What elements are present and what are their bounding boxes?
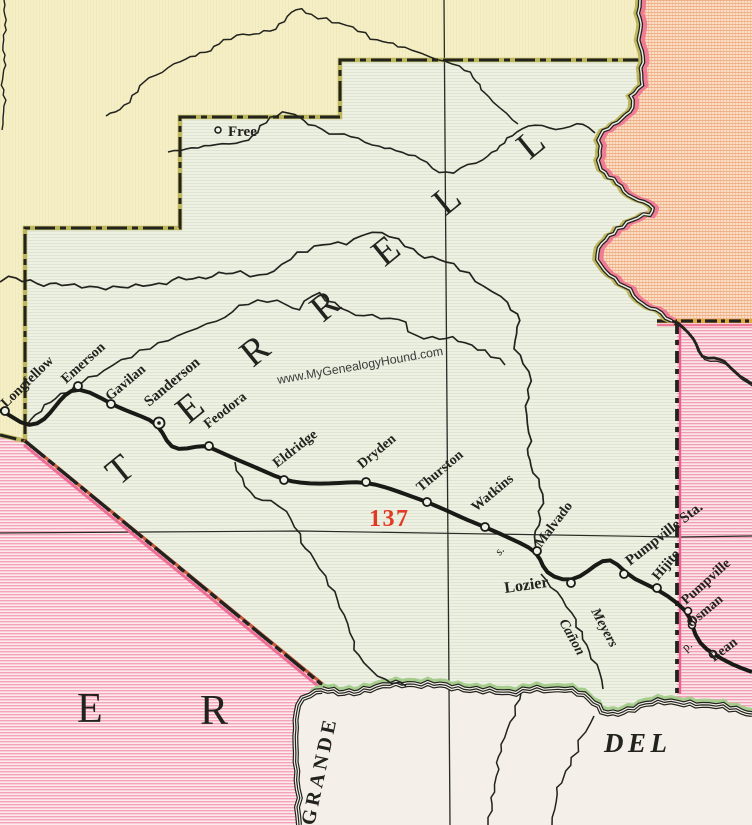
svg-text:Free: Free [228, 124, 257, 140]
svg-text:137: 137 [369, 506, 410, 532]
svg-text:E: E [77, 686, 103, 732]
svg-text:R: R [200, 688, 228, 734]
svg-text:DEL: DEL [603, 728, 672, 758]
